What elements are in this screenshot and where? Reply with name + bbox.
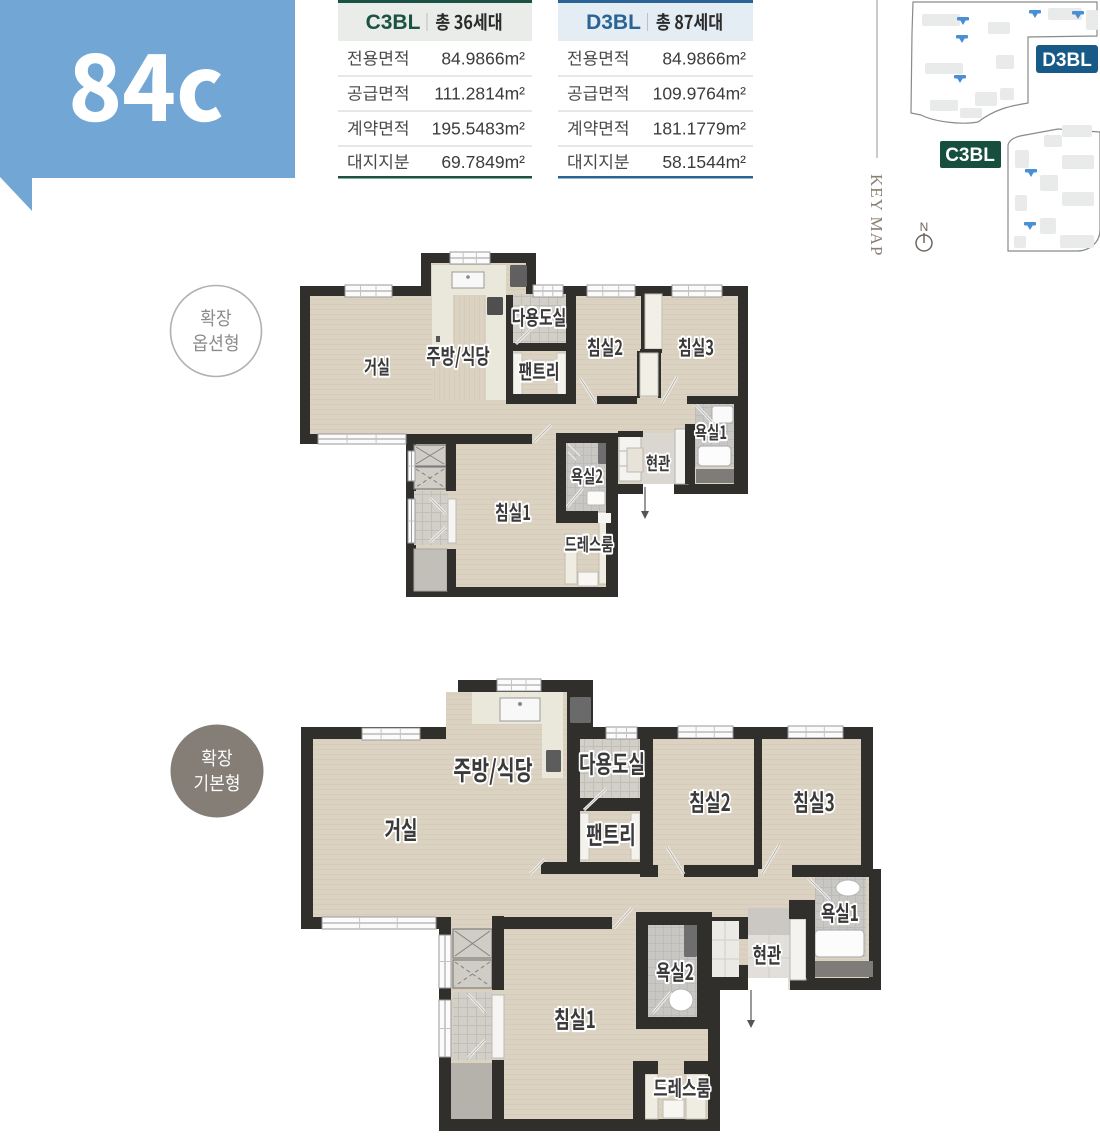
svg-text:58.1544m²: 58.1544m² [662, 152, 746, 172]
svg-text:N: N [920, 220, 929, 234]
svg-text:84.9866m²: 84.9866m² [662, 49, 746, 69]
svg-text:195.5483m²: 195.5483m² [432, 119, 526, 139]
svg-text:C3BL: C3BL [945, 145, 995, 166]
svg-text:KEY MAP: KEY MAP [867, 174, 886, 256]
svg-text:84.9866m²: 84.9866m² [441, 49, 525, 69]
svg-text:D3BL: D3BL [1042, 50, 1092, 71]
svg-text:69.7849m²: 69.7849m² [441, 152, 525, 172]
svg-text:109.9764m²: 109.9764m² [653, 84, 747, 104]
svg-text:C3BL: C3BL [366, 11, 421, 34]
svg-text:D3BL: D3BL [586, 11, 641, 34]
svg-text:111.2814m²: 111.2814m² [434, 84, 525, 104]
svg-text:181.1779m²: 181.1779m² [653, 119, 747, 139]
